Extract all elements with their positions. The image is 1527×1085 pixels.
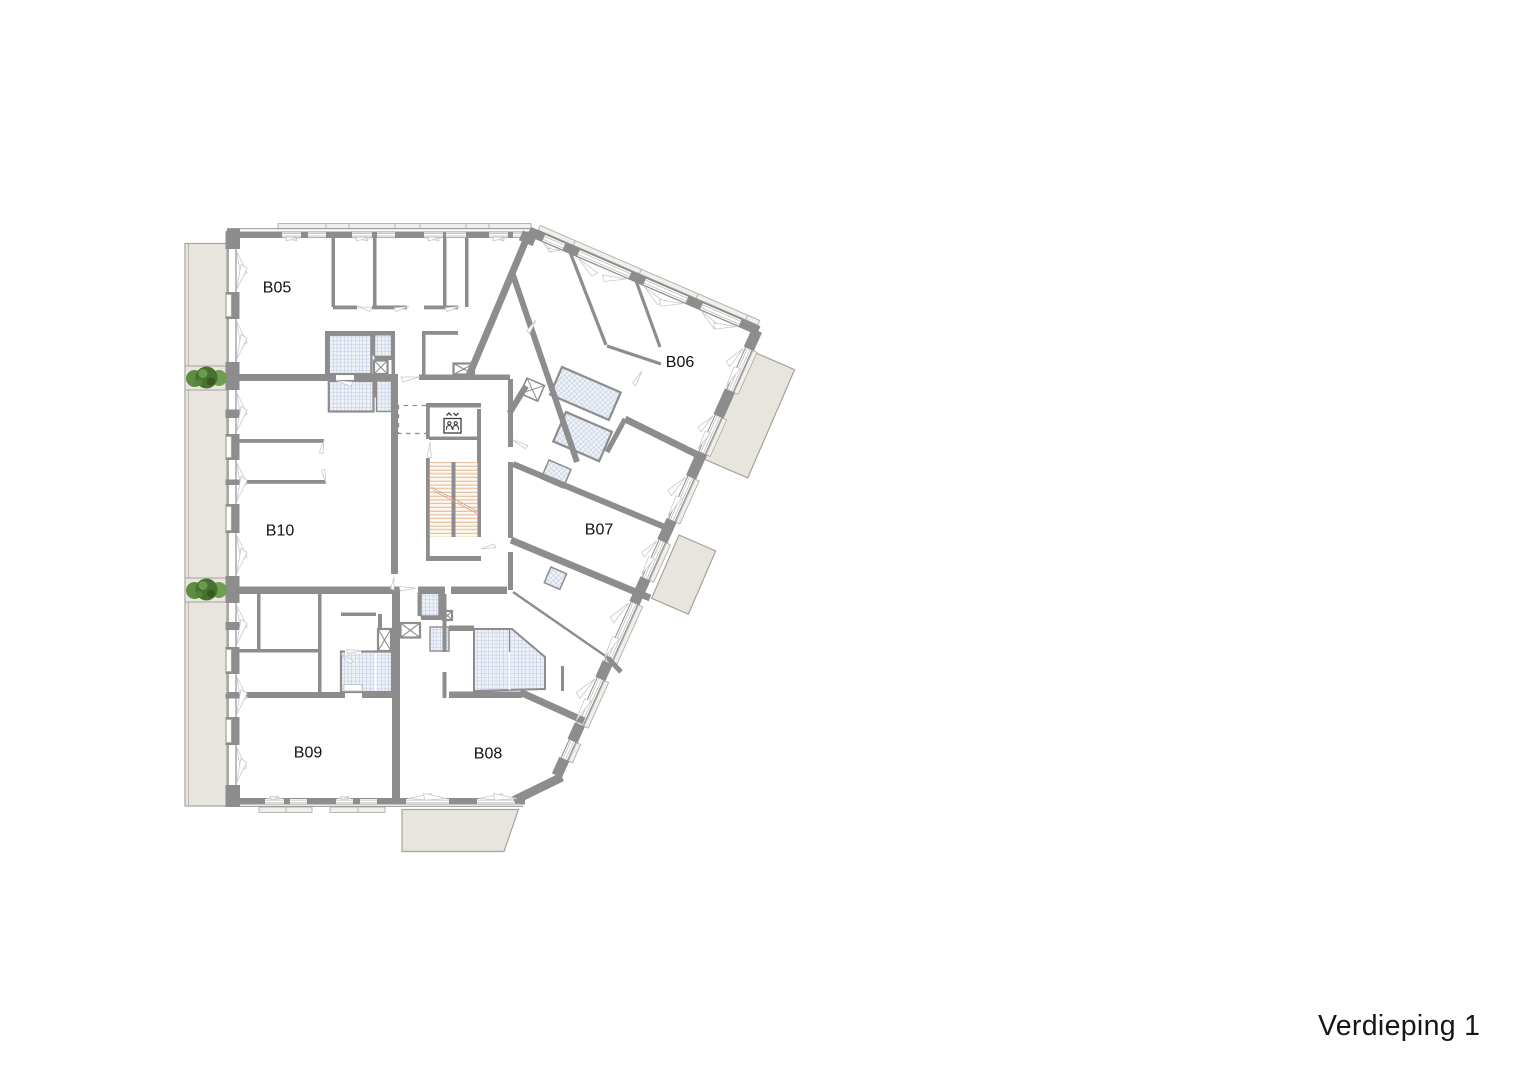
svg-text:B07: B07 xyxy=(585,522,614,539)
svg-text:B05: B05 xyxy=(263,280,292,297)
svg-text:B10: B10 xyxy=(266,523,295,540)
svg-text:B08: B08 xyxy=(474,746,503,763)
svg-text:B09: B09 xyxy=(294,745,323,762)
svg-text:Verdieping 1: Verdieping 1 xyxy=(1318,1010,1480,1042)
svg-text:B06: B06 xyxy=(666,354,695,371)
